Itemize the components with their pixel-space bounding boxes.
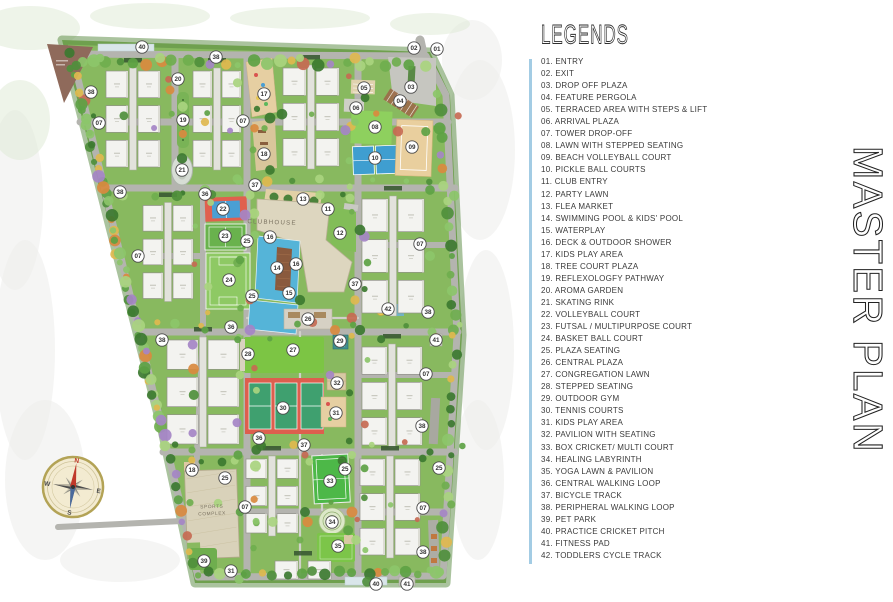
map-marker: 07 bbox=[417, 502, 429, 514]
legend-item: 31. KIDS PLAY AREA bbox=[541, 417, 778, 429]
svg-text:27: 27 bbox=[289, 347, 297, 354]
svg-text:02: 02 bbox=[410, 45, 418, 52]
svg-text:38: 38 bbox=[424, 309, 432, 316]
svg-text:07: 07 bbox=[95, 120, 103, 127]
svg-text:07: 07 bbox=[134, 253, 142, 260]
master-plan-title-text: MASTER PLAN bbox=[845, 146, 891, 454]
legend-item: 10. PICKLE BALL COURTS bbox=[541, 164, 778, 176]
map-marker: 39 bbox=[198, 555, 210, 567]
map-marker: 25 bbox=[433, 462, 445, 474]
legend-item: 29. OUTDOOR GYM bbox=[541, 393, 778, 405]
legend-item: 04. FEATURE PERGOLA bbox=[541, 92, 778, 104]
svg-text:36: 36 bbox=[255, 435, 263, 442]
legend-item: 41. FITNESS PAD bbox=[541, 538, 778, 550]
legend-item: 24. BASKET BALL COURT bbox=[541, 333, 778, 345]
map-marker: 35 bbox=[332, 540, 344, 552]
building-cluster bbox=[362, 334, 422, 448]
map-marker: 37 bbox=[298, 439, 310, 451]
svg-text:01: 01 bbox=[433, 46, 441, 53]
svg-text:26: 26 bbox=[304, 316, 312, 323]
legend-item: 06. ARRIVAL PLAZA bbox=[541, 116, 778, 128]
map-marker: 02 bbox=[408, 42, 420, 54]
svg-text:38: 38 bbox=[418, 423, 426, 430]
map-marker: 36 bbox=[253, 432, 265, 444]
svg-text:41: 41 bbox=[403, 581, 411, 588]
map-marker: 21 bbox=[176, 164, 188, 176]
svg-text:13: 13 bbox=[299, 196, 307, 203]
svg-text:03: 03 bbox=[407, 84, 415, 91]
legend-item: 13. FLEA MARKET bbox=[541, 201, 778, 213]
svg-text:35: 35 bbox=[334, 543, 342, 550]
legend-item: 01. ENTRY bbox=[541, 56, 778, 68]
svg-text:30: 30 bbox=[279, 405, 287, 412]
building-cluster bbox=[362, 186, 424, 316]
svg-text:16: 16 bbox=[292, 261, 300, 268]
svg-text:23: 23 bbox=[221, 233, 229, 240]
map-marker: 09 bbox=[406, 141, 418, 153]
svg-text:09: 09 bbox=[408, 144, 416, 151]
svg-text:07: 07 bbox=[239, 118, 247, 125]
legend-item: 11. CLUB ENTRY bbox=[541, 176, 778, 188]
map-marker: 25 bbox=[241, 235, 253, 247]
svg-text:42: 42 bbox=[384, 306, 392, 313]
legend-item: 14. SWIMMING POOL & KIDS' POOL bbox=[541, 213, 778, 225]
map-marker: 29 bbox=[334, 335, 346, 347]
map-marker: 41 bbox=[401, 578, 413, 590]
svg-text:40: 40 bbox=[138, 44, 146, 51]
svg-text:37: 37 bbox=[351, 281, 359, 288]
svg-text:38: 38 bbox=[158, 337, 166, 344]
svg-text:38: 38 bbox=[212, 54, 220, 61]
map-marker: 07 bbox=[132, 250, 144, 262]
map-marker: 06 bbox=[350, 102, 362, 114]
legend-item: 02. EXIT bbox=[541, 68, 778, 80]
svg-text:25: 25 bbox=[248, 293, 256, 300]
map-marker: 01 bbox=[431, 43, 443, 55]
legend-item: 09. BEACH VOLLEYBALL COURT bbox=[541, 152, 778, 164]
map-marker: 15 bbox=[283, 287, 295, 299]
legend-item: 15. WATERPLAY bbox=[541, 225, 778, 237]
map-marker: 27 bbox=[287, 344, 299, 356]
map-marker: 22 bbox=[217, 203, 229, 215]
building-cluster bbox=[106, 58, 160, 170]
legend-item: 05. TERRACED AREA WITH STEPS & LIFT bbox=[541, 104, 778, 116]
legend-item: 16. DECK & OUTDOOR SHOWER bbox=[541, 237, 778, 249]
map-marker: 08 bbox=[369, 121, 381, 133]
map-marker: 38 bbox=[422, 306, 434, 318]
svg-text:20: 20 bbox=[174, 76, 182, 83]
legend-item: 08. LAWN WITH STEPPED SEATING bbox=[541, 140, 778, 152]
legend-item: 35. YOGA LAWN & PAVILION bbox=[541, 466, 778, 478]
master-plan-map: 0102030405060707070707070708091011121314… bbox=[0, 0, 530, 597]
legend-panel: LEGENDS 01. ENTRY02. EXIT03. DROP OFF PL… bbox=[538, 18, 778, 562]
map-marker: 38 bbox=[114, 186, 126, 198]
svg-text:07: 07 bbox=[416, 241, 424, 248]
legend-item: 23. FUTSAL / MULTIPURPOSE COURT bbox=[541, 321, 778, 333]
svg-text:38: 38 bbox=[419, 549, 427, 556]
svg-text:32: 32 bbox=[333, 380, 341, 387]
map-marker: 31 bbox=[225, 565, 237, 577]
svg-text:12: 12 bbox=[336, 230, 344, 237]
map-marker: 28 bbox=[242, 348, 254, 360]
legend-item: 12. PARTY LAWN bbox=[541, 189, 778, 201]
map-marker: 07 bbox=[414, 238, 426, 250]
legend-item: 25. PLAZA SEATING bbox=[541, 345, 778, 357]
map-marker: 12 bbox=[334, 227, 346, 239]
master-plan-map-panel: 0102030405060707070707070708091011121314… bbox=[0, 0, 530, 597]
map-marker: 13 bbox=[297, 193, 309, 205]
map-marker: 04 bbox=[394, 95, 406, 107]
svg-text:29: 29 bbox=[336, 338, 344, 345]
svg-text:25: 25 bbox=[341, 466, 349, 473]
legend-item: 19. REFLEXOLOGFY PATHWAY bbox=[541, 273, 778, 285]
map-marker: 42 bbox=[382, 303, 394, 315]
svg-text:39: 39 bbox=[200, 558, 208, 565]
page: { "legend": { "title": "LEGENDS", "accen… bbox=[0, 0, 893, 597]
map-marker: 25 bbox=[219, 472, 231, 484]
building-cluster bbox=[167, 327, 239, 447]
svg-text:25: 25 bbox=[435, 465, 443, 472]
map-marker: 33 bbox=[324, 475, 336, 487]
legend-title: LEGENDS bbox=[539, 18, 689, 48]
svg-text:41: 41 bbox=[432, 337, 440, 344]
legend-item: 18. TREE COURT PLAZA bbox=[541, 261, 778, 273]
svg-text:22: 22 bbox=[219, 206, 227, 213]
legend-item: 39. PET PARK bbox=[541, 514, 778, 526]
legend-item: 03. DROP OFF PLAZA bbox=[541, 80, 778, 92]
master-plan-title: MASTER PLAN bbox=[792, 138, 892, 588]
map-marker: 36 bbox=[199, 188, 211, 200]
map-marker: 32 bbox=[331, 377, 343, 389]
svg-text:11: 11 bbox=[325, 206, 332, 213]
map-marker: 31 bbox=[330, 407, 342, 419]
svg-text:28: 28 bbox=[244, 351, 252, 358]
map-marker: 40 bbox=[136, 41, 148, 53]
svg-text:21: 21 bbox=[178, 167, 186, 174]
building-cluster bbox=[360, 446, 420, 558]
building-cluster bbox=[143, 193, 193, 302]
legend-item: 32. PAVILION WITH SEATING bbox=[541, 429, 778, 441]
map-marker: 10 bbox=[369, 152, 381, 164]
map-marker: 24 bbox=[223, 274, 235, 286]
svg-text:04: 04 bbox=[396, 98, 404, 105]
map-marker: 18 bbox=[258, 148, 270, 160]
svg-text:36: 36 bbox=[227, 324, 235, 331]
legend-item: 33. BOX CRICKET/ MULTI COURT bbox=[541, 442, 778, 454]
svg-text:07: 07 bbox=[422, 371, 430, 378]
svg-text:16: 16 bbox=[266, 234, 274, 241]
legend-title-text: LEGENDS bbox=[541, 20, 629, 48]
map-marker: 38 bbox=[156, 334, 168, 346]
legend-item: 40. PRACTICE CRICKET PITCH bbox=[541, 526, 778, 538]
map-marker: 38 bbox=[417, 546, 429, 558]
svg-text:06: 06 bbox=[352, 105, 360, 112]
svg-text:24: 24 bbox=[225, 277, 233, 284]
map-marker: 26 bbox=[302, 313, 314, 325]
map-marker: 37 bbox=[249, 179, 261, 191]
legend-item: 07. TOWER DROP-OFF bbox=[541, 128, 778, 140]
map-marker: 07 bbox=[237, 115, 249, 127]
legend-item: 36. CENTRAL WALKING LOOP bbox=[541, 478, 778, 490]
svg-text:25: 25 bbox=[221, 475, 229, 482]
svg-text:19: 19 bbox=[179, 117, 187, 124]
svg-text:18: 18 bbox=[260, 151, 268, 158]
svg-text:34: 34 bbox=[328, 519, 336, 526]
svg-text:37: 37 bbox=[300, 442, 308, 449]
map-marker: 18 bbox=[186, 464, 198, 476]
svg-text:36: 36 bbox=[201, 191, 209, 198]
map-marker: 07 bbox=[239, 501, 251, 513]
svg-text:14: 14 bbox=[273, 265, 281, 272]
legend-list: 01. ENTRY02. EXIT03. DROP OFF PLAZA04. F… bbox=[538, 56, 778, 562]
legend-item: 30. TENNIS COURTS bbox=[541, 405, 778, 417]
legend-item: 20. AROMA GARDEN bbox=[541, 285, 778, 297]
legend-accent-bar bbox=[529, 59, 532, 564]
map-marker: 17 bbox=[258, 88, 270, 100]
svg-text:15: 15 bbox=[285, 290, 293, 297]
map-marker: 38 bbox=[85, 86, 97, 98]
map-marker: 40 bbox=[370, 578, 382, 590]
map-marker: 34 bbox=[326, 516, 338, 528]
legend-item: 42. TODDLERS CYCLE TRACK bbox=[541, 550, 778, 562]
legend-item: 27. CONGREGATION LAWN bbox=[541, 369, 778, 381]
svg-text:08: 08 bbox=[371, 124, 379, 131]
map-marker: 30 bbox=[277, 402, 289, 414]
map-marker: 03 bbox=[405, 81, 417, 93]
legend-item: 17. KIDS PLAY AREA bbox=[541, 249, 778, 261]
svg-text:25: 25 bbox=[243, 238, 251, 245]
svg-text:38: 38 bbox=[87, 89, 95, 96]
map-marker: 36 bbox=[225, 321, 237, 333]
map-marker: 37 bbox=[349, 278, 361, 290]
legend-item: 37. BICYCLE TRACK bbox=[541, 490, 778, 502]
legend-item: 34. HEALING LABYRINTH bbox=[541, 454, 778, 466]
legend-item: 22. VOLLEYBALL COURT bbox=[541, 309, 778, 321]
map-marker: 25 bbox=[339, 463, 351, 475]
map-marker: 38 bbox=[416, 420, 428, 432]
map-marker: 19 bbox=[177, 114, 189, 126]
map-marker: 16 bbox=[290, 258, 302, 270]
map-marker: 07 bbox=[93, 117, 105, 129]
legend-item: 21. SKATING RINK bbox=[541, 297, 778, 309]
svg-text:31: 31 bbox=[227, 568, 235, 575]
svg-text:10: 10 bbox=[371, 155, 379, 162]
map-marker: 11 bbox=[322, 203, 334, 215]
svg-text:07: 07 bbox=[241, 504, 249, 511]
legend-item: 28. STEPPED SEATING bbox=[541, 381, 778, 393]
map-marker: 23 bbox=[219, 230, 231, 242]
svg-text:07: 07 bbox=[419, 505, 427, 512]
legend-item: 38. PERIPHERAL WALKING LOOP bbox=[541, 502, 778, 514]
legend-item: 26. CENTRAL PLAZA bbox=[541, 357, 778, 369]
svg-text:31: 31 bbox=[332, 410, 340, 417]
svg-text:38: 38 bbox=[116, 189, 124, 196]
building-cluster bbox=[193, 58, 241, 170]
svg-text:40: 40 bbox=[372, 581, 380, 588]
map-marker: 25 bbox=[246, 290, 258, 302]
map-marker: 20 bbox=[172, 73, 184, 85]
svg-text:05: 05 bbox=[360, 85, 368, 92]
svg-text:18: 18 bbox=[188, 467, 196, 474]
map-marker: 38 bbox=[210, 51, 222, 63]
map-marker: 05 bbox=[358, 82, 370, 94]
svg-text:37: 37 bbox=[251, 182, 259, 189]
map-marker: 16 bbox=[264, 231, 276, 243]
map-marker: 41 bbox=[430, 334, 442, 346]
svg-text:33: 33 bbox=[326, 478, 334, 485]
map-marker: 07 bbox=[420, 368, 432, 380]
svg-text:17: 17 bbox=[260, 91, 268, 98]
map-marker: 14 bbox=[271, 262, 283, 274]
